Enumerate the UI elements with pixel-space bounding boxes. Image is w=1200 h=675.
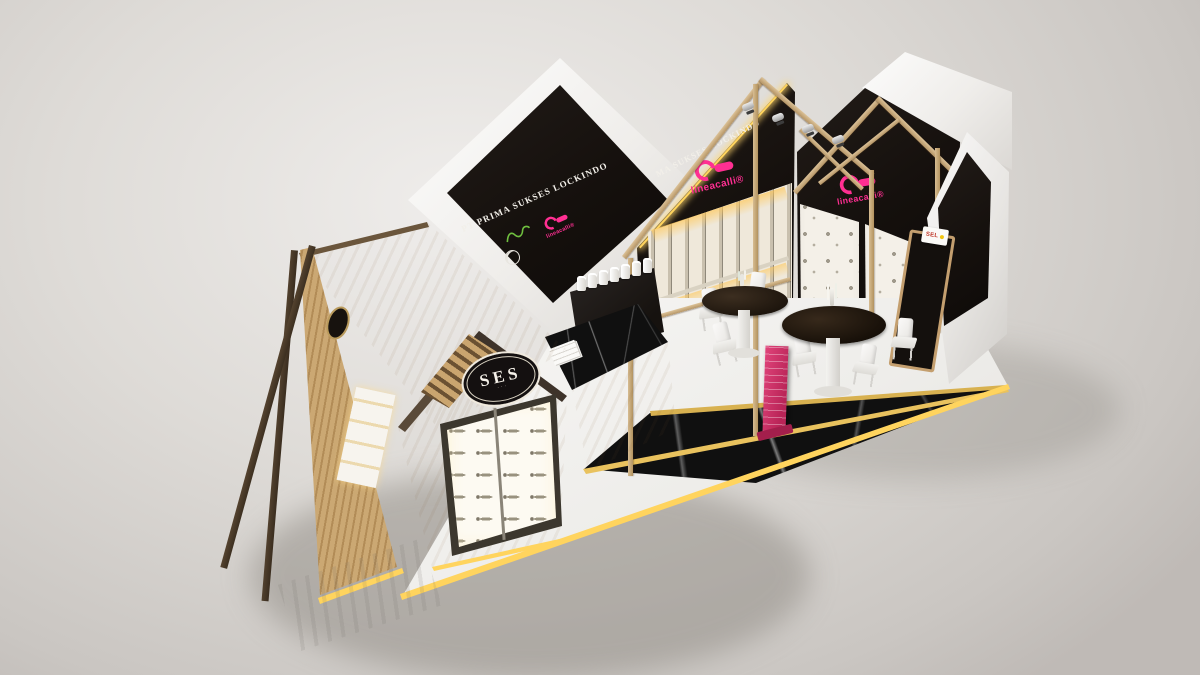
sample-cylinder-icon — [643, 258, 652, 273]
totem-stand — [763, 346, 789, 433]
sample-cylinder-icon — [610, 267, 619, 282]
sample-cylinder-icon — [632, 261, 641, 276]
sample-cylinder-icon — [599, 270, 608, 285]
booth-render: PT PRIMA SUKSES LOCKINDO lineacalli® MA … — [0, 0, 1200, 675]
end-sign-dot-icon — [940, 235, 945, 240]
end-sign-text: SEL — [925, 232, 938, 240]
table-pedestal — [738, 310, 750, 352]
sample-cylinder-icon — [621, 264, 630, 279]
sample-cylinder-icon — [577, 276, 586, 291]
white-chair — [888, 317, 919, 363]
track-spotlight-icon — [801, 123, 815, 134]
table-base — [814, 386, 852, 397]
center-frame-post — [753, 84, 758, 436]
sample-cylinder-icon — [588, 273, 597, 288]
table-pedestal — [826, 338, 840, 390]
flower-vase-icon — [830, 288, 834, 306]
flower-vase-icon — [740, 274, 744, 286]
table-base — [728, 348, 760, 358]
lineacalli-pill-icon — [713, 160, 733, 172]
ses-badge-sub: ··· — [497, 384, 509, 391]
